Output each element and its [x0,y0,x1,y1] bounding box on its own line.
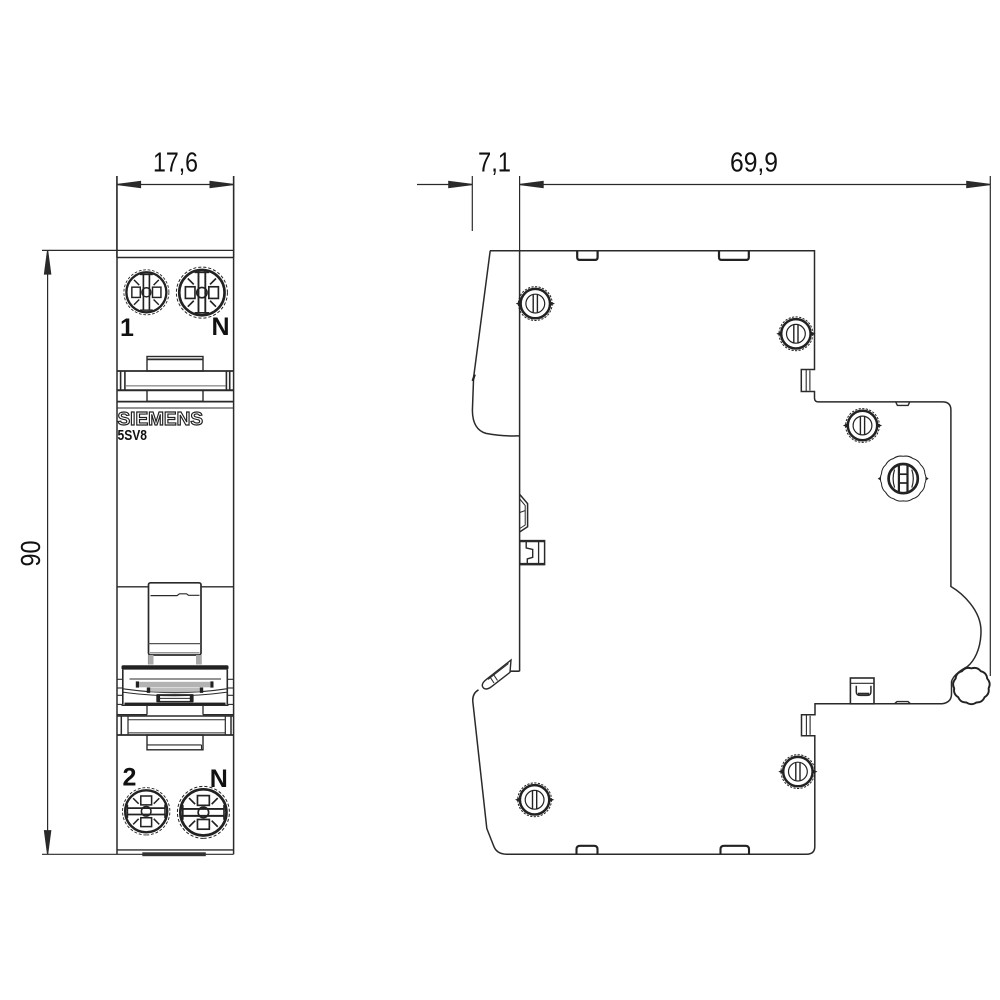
svg-text:2: 2 [123,764,137,792]
svg-text:N: N [210,765,228,793]
svg-text:7,1: 7,1 [478,147,511,178]
svg-text:17,6: 17,6 [153,147,198,178]
svg-text:1: 1 [120,314,134,342]
svg-text:69,9: 69,9 [730,147,778,178]
svg-text:5SV8: 5SV8 [118,428,148,444]
svg-text:SIEMENS: SIEMENS [118,408,204,429]
svg-text:N: N [211,313,229,341]
svg-text:90: 90 [15,541,46,567]
